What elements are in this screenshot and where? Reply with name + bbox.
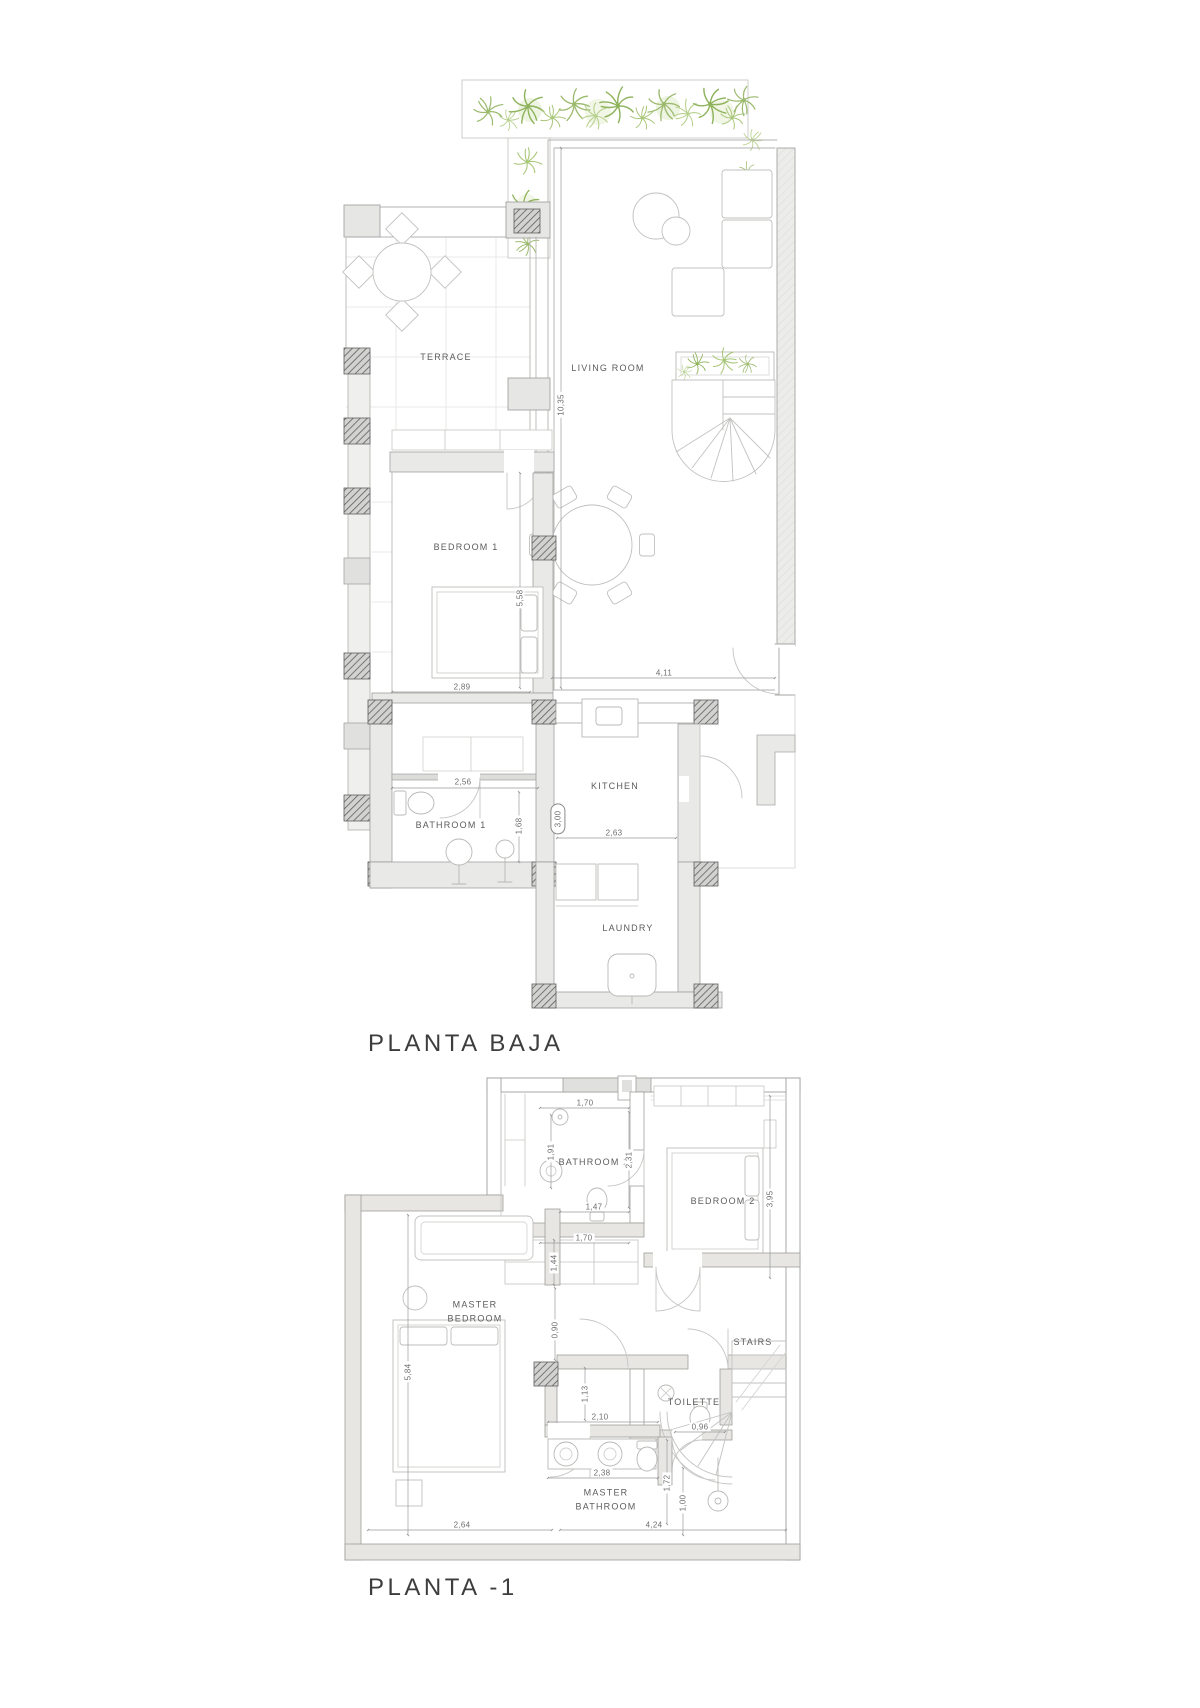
dimension-label: 1,91: [546, 1142, 555, 1163]
dimension-label: 2,63: [604, 828, 625, 837]
dimension-label: 5,58: [515, 588, 524, 609]
washer-dryer: [556, 864, 638, 906]
room-label-terrace: TERRACE: [420, 350, 471, 364]
door-arc: [700, 756, 742, 798]
dimension-label: 4,24: [644, 1520, 665, 1529]
master-bed: [393, 1320, 505, 1472]
dimension-label: 2,38: [592, 1468, 613, 1477]
entry-door: [733, 644, 795, 695]
ground-floor-plan: [343, 80, 795, 1008]
dimension-label: 2,89: [452, 682, 473, 691]
bathroom-1: [368, 700, 554, 888]
left-colonnade: [344, 348, 370, 830]
toilet-icon: [394, 791, 434, 815]
room-label-bedroom-2: BEDROOM 2: [691, 1194, 756, 1208]
room-label-master-bedroom: MASTER BEDROOM: [448, 1298, 503, 1327]
dimension-label: 4,11: [654, 668, 674, 677]
room-label-stairs: STAIRS: [733, 1335, 772, 1349]
room-label-master-bathroom: MASTER BATHROOM: [576, 1486, 637, 1515]
room-label-bedroom-1: BEDROOM 1: [434, 540, 499, 554]
dimension-label: 3,00: [550, 804, 565, 835]
double-door-arcs: [656, 1267, 700, 1311]
dimension-label: 10,35: [556, 392, 565, 418]
nightstand: [396, 1480, 422, 1506]
dimension-label: 0,96: [690, 1422, 711, 1431]
sofa: [633, 170, 772, 316]
dimension-label: 1,72: [662, 1473, 671, 1494]
dimension-label: 0,90: [550, 1320, 559, 1341]
floor-plan-document: PLANTA BAJA PLANTA -1 TERRACELIVING ROOM…: [0, 0, 1200, 1708]
dimension-label: 1,47: [584, 1202, 605, 1211]
dimension-label: 1,68: [514, 816, 523, 837]
dimension-label: 2,10: [590, 1412, 611, 1421]
dimension-label: 1,70: [574, 1233, 595, 1242]
bedroom-1: [372, 430, 556, 703]
indoor-planter: [676, 344, 774, 380]
dimension-label: 1,70: [575, 1098, 596, 1107]
dimension-label: 2,31: [624, 1150, 633, 1171]
room-label-living-room: LIVING ROOM: [571, 361, 644, 375]
dimension-label: 5,84: [403, 1362, 412, 1383]
ground-floor-title: PLANTA BAJA: [368, 1030, 563, 1058]
room-label-toilette: TOILETTE: [668, 1395, 720, 1409]
dimension-label: 2,56: [453, 777, 474, 786]
floor-plan-drawing: [0, 0, 1200, 1708]
column: [344, 205, 380, 237]
room-label-bathroom-2: BATHROOM 2: [559, 1155, 630, 1169]
shower-icon: [552, 1109, 568, 1125]
room-label-bathroom-1: BATHROOM 1: [416, 818, 487, 832]
basement-plan: [345, 1076, 800, 1560]
room-label-laundry: LAUNDRY: [602, 921, 653, 935]
wardrobe: [654, 1086, 764, 1106]
column-hatched: [514, 209, 540, 233]
room-label-kitchen: KITCHEN: [591, 779, 639, 793]
toilet-icon: [637, 1441, 657, 1471]
bench: [415, 1216, 533, 1260]
living-room: [530, 140, 796, 695]
stool: [403, 1286, 427, 1310]
shower-head-icon: [708, 1491, 728, 1511]
dimension-label: 1,00: [678, 1493, 687, 1514]
kitchen-counter: [582, 699, 638, 737]
master-bedroom: [393, 1216, 533, 1506]
exterior-wall: [777, 148, 795, 646]
closet: [423, 737, 471, 771]
dimension-label: 1,44: [549, 1253, 558, 1274]
hallway-wall: [545, 1209, 560, 1285]
bed: [432, 587, 543, 678]
spiral-staircase: [672, 380, 775, 482]
dimension-label: 1,13: [580, 1384, 589, 1405]
dimension-label: 2,64: [452, 1520, 473, 1529]
dimension-label: 3,95: [765, 1189, 774, 1210]
basement-title: PLANTA -1: [368, 1574, 518, 1602]
